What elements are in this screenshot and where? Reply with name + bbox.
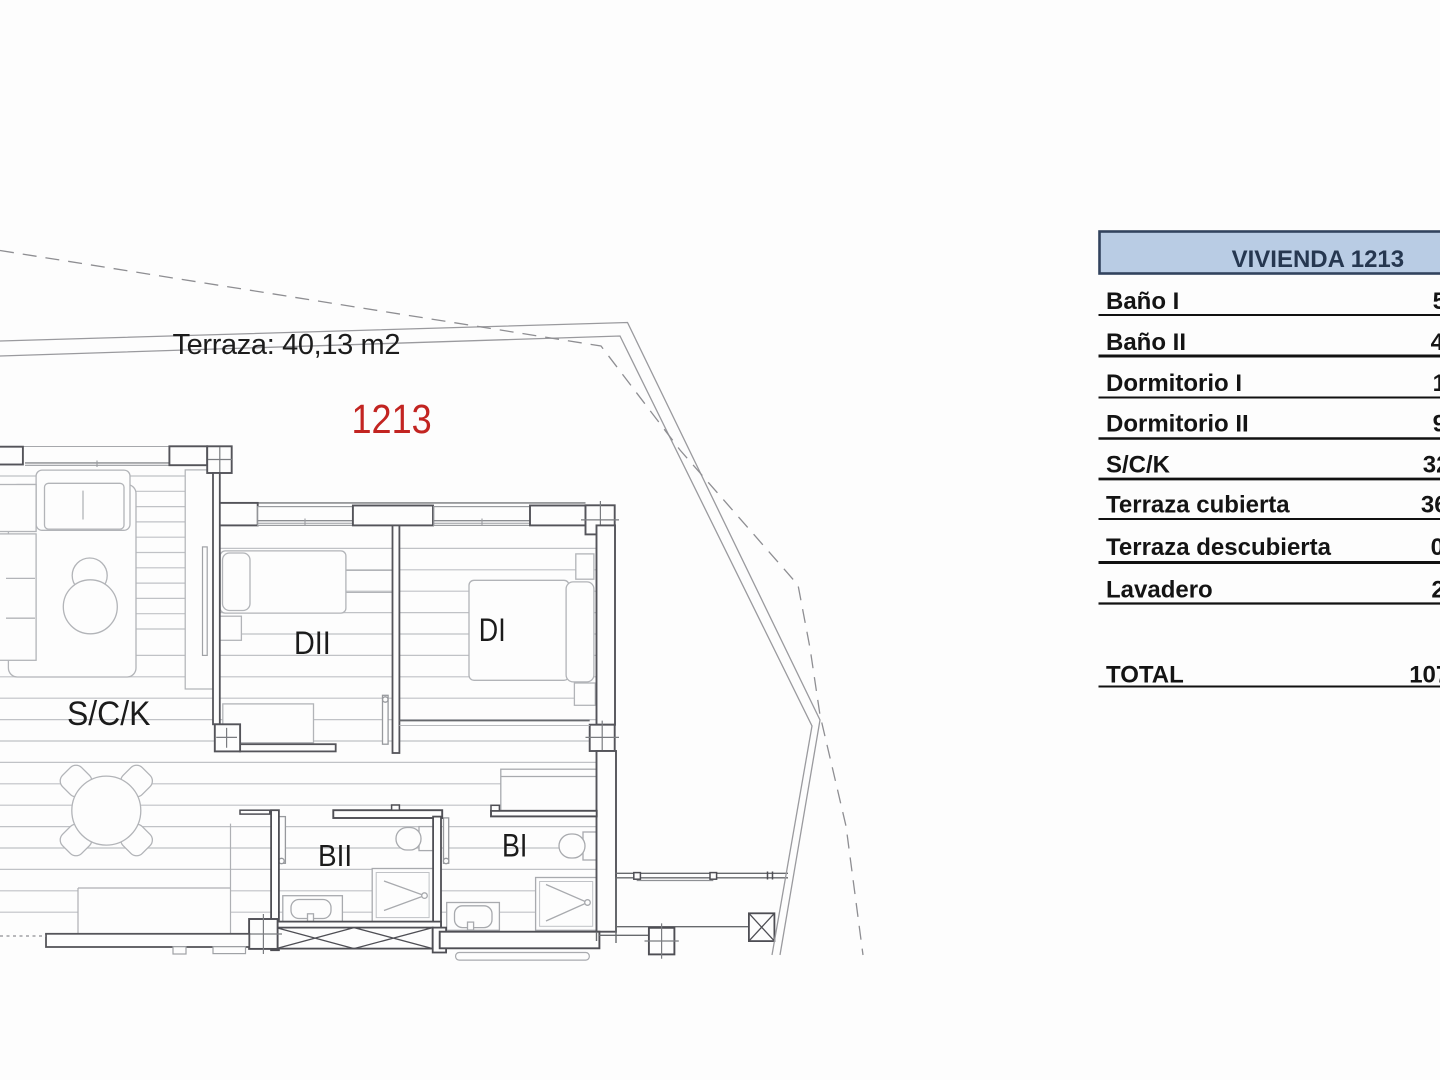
svg-text:Terraza: 40,13 m2: Terraza: 40,13 m2 — [173, 329, 401, 361]
svg-text:2,35: 2,35 — [1431, 577, 1440, 604]
svg-text:32,45: 32,45 — [1423, 452, 1440, 479]
svg-text:Terraza cubierta: Terraza cubierta — [1106, 492, 1290, 519]
svg-text:0,60: 0,60 — [1431, 534, 1440, 561]
svg-text:107,20: 107,20 — [1409, 662, 1440, 689]
svg-text:S/C/K: S/C/K — [67, 694, 150, 732]
svg-text:5,80: 5,80 — [1433, 288, 1440, 315]
svg-text:36,75: 36,75 — [1421, 492, 1440, 519]
svg-text:1213: 1213 — [352, 397, 432, 443]
svg-text:S/C/K: S/C/K — [1106, 452, 1171, 479]
svg-text:10,85: 10,85 — [1433, 370, 1440, 397]
svg-text:Terraza descubierta: Terraza descubierta — [1106, 534, 1332, 561]
svg-text:BII: BII — [318, 839, 352, 874]
svg-text:DII: DII — [294, 626, 331, 662]
svg-text:VIVIENDA 1213: VIVIENDA 1213 — [1232, 246, 1405, 273]
svg-text:DI: DI — [479, 613, 506, 649]
svg-text:9,90: 9,90 — [1433, 411, 1440, 438]
svg-text:Dormitorio II: Dormitorio II — [1106, 411, 1249, 438]
svg-text:Lavadero: Lavadero — [1106, 577, 1213, 604]
svg-text:BI: BI — [502, 828, 527, 864]
svg-text:Baño I: Baño I — [1106, 288, 1179, 315]
svg-text:TOTAL: TOTAL — [1106, 662, 1184, 689]
svg-text:4,10: 4,10 — [1431, 329, 1440, 356]
svg-text:Baño II: Baño II — [1106, 329, 1186, 356]
svg-text:Dormitorio I: Dormitorio I — [1106, 370, 1242, 397]
